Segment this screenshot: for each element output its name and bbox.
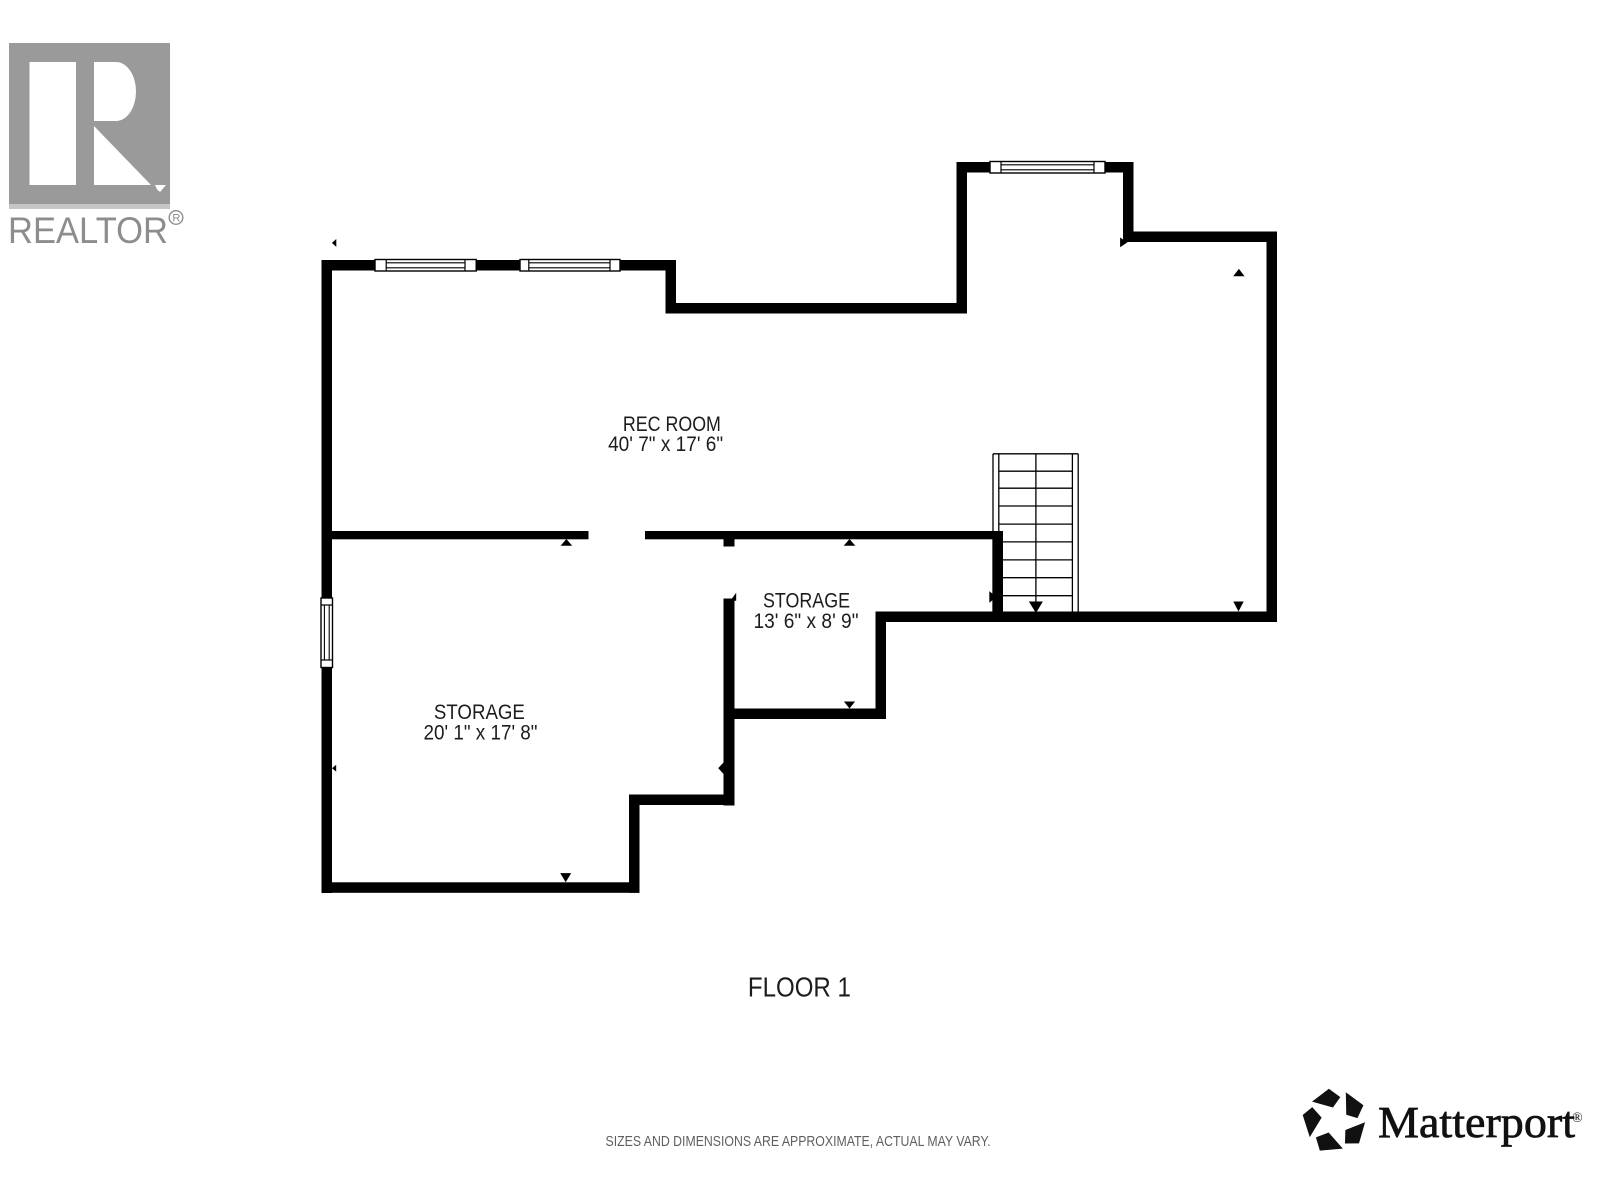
svg-text:40' 7" x 17' 6": 40' 7" x 17' 6" [608, 433, 723, 456]
svg-text:®: ® [1572, 1111, 1583, 1126]
svg-text:Matterport: Matterport [1378, 1098, 1575, 1147]
svg-text:REALTOR: REALTOR [8, 210, 168, 251]
svg-text:FLOOR 1: FLOOR 1 [748, 972, 851, 1003]
svg-text:20' 1" x 17' 8": 20' 1" x 17' 8" [424, 721, 538, 744]
svg-text:13' 6" x 8' 9": 13' 6" x 8' 9" [754, 610, 859, 633]
svg-text:SIZES AND DIMENSIONS ARE APPRO: SIZES AND DIMENSIONS ARE APPROXIMATE, AC… [606, 1133, 991, 1150]
svg-text:R: R [172, 213, 180, 225]
